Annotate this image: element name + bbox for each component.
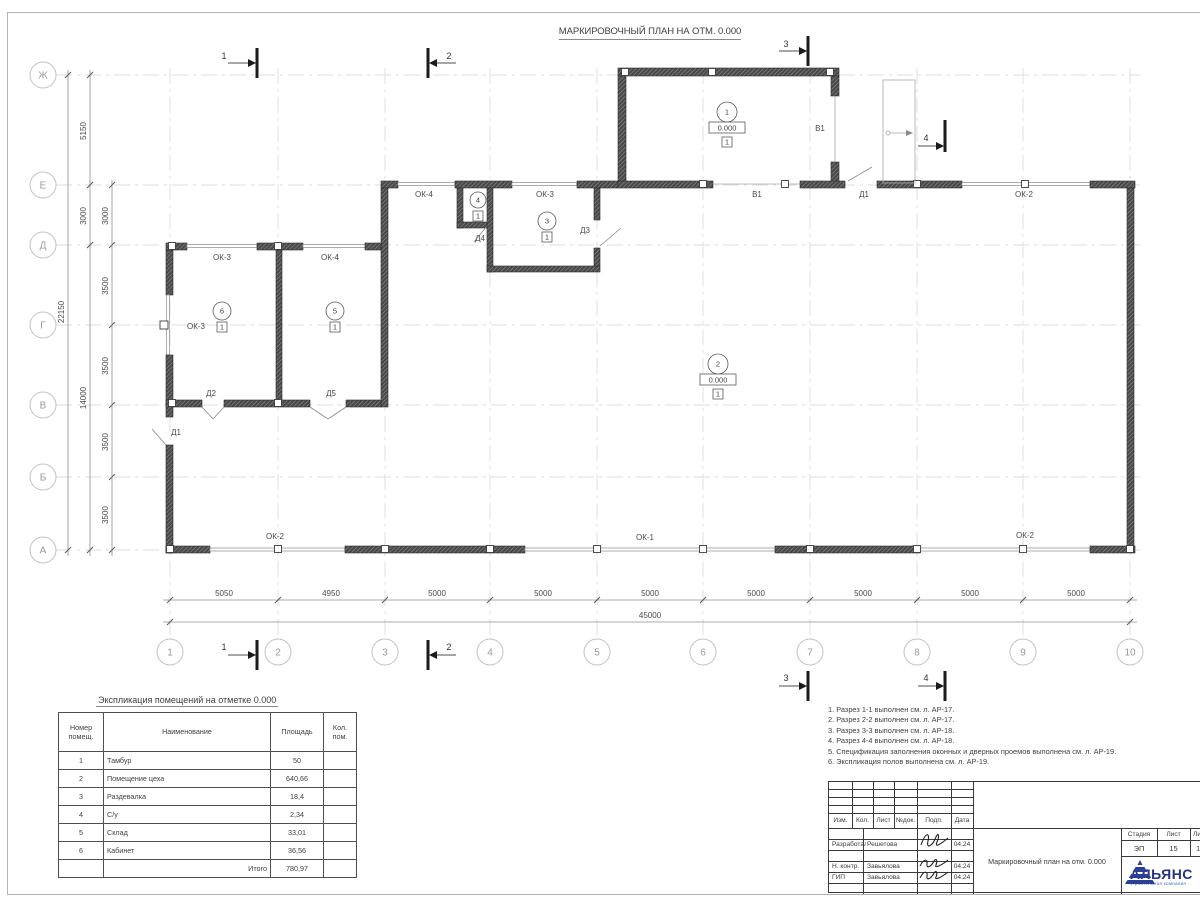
sheet-label: Лист — [1157, 828, 1190, 840]
svg-text:В: В — [40, 401, 47, 412]
svg-text:1: 1 — [725, 138, 729, 147]
svg-text:22150: 22150 — [57, 300, 66, 323]
svg-text:3500: 3500 — [101, 357, 110, 375]
total-value: 780,97 — [271, 860, 324, 878]
sheet-value: 15 — [1157, 840, 1190, 856]
table-title: Экспликация помещений на отметке 0.000 — [96, 695, 278, 707]
svg-text:Ж: Ж — [38, 71, 48, 82]
company-logo: АЛЬЯНС строительная компания — [1125, 860, 1200, 892]
svg-text:14000: 14000 — [79, 386, 88, 409]
svg-text:4: 4 — [476, 196, 480, 205]
note-line: 4. Разрез 4-4 выполнен см. л. АР-18. — [828, 736, 1188, 746]
date-developer: 04.24 — [951, 839, 973, 850]
svg-text:В1: В1 — [815, 124, 825, 133]
svg-text:Д1: Д1 — [859, 190, 869, 199]
svg-text:5000: 5000 — [854, 589, 872, 598]
ramp-arrow-icon — [906, 130, 913, 136]
svg-text:3000: 3000 — [101, 207, 110, 225]
svg-text:ОК-3: ОК-3 — [536, 190, 555, 199]
name-gip: Завьялова — [864, 872, 919, 883]
svg-text:В1: В1 — [752, 190, 762, 199]
title-block: Изм. Кол. Лист №док. Подп. Дата Разработ… — [828, 781, 1200, 893]
svg-text:Е: Е — [40, 181, 47, 192]
svg-text:4: 4 — [923, 133, 928, 143]
svg-text:1: 1 — [220, 323, 224, 332]
table-total-row: Итого 780,97 — [59, 860, 357, 878]
svg-text:1: 1 — [716, 390, 720, 399]
svg-text:4950: 4950 — [322, 589, 340, 598]
date-gip: 04.24 — [951, 872, 973, 883]
sheets-label: Листов — [1190, 828, 1200, 840]
table-row: 2 Помещение цеха 640,66 — [59, 770, 357, 788]
role-developer: Разработал — [829, 839, 866, 850]
svg-text:1: 1 — [221, 51, 226, 61]
svg-text:3000: 3000 — [79, 207, 88, 225]
svg-text:0.000: 0.000 — [718, 124, 737, 133]
date-ncontr: 04.24 — [951, 861, 973, 872]
stage-label: Стадия — [1121, 828, 1157, 840]
svg-text:3: 3 — [783, 39, 788, 49]
svg-text:1: 1 — [476, 212, 480, 221]
svg-text:1: 1 — [333, 323, 337, 332]
svg-text:ОК-2: ОК-2 — [266, 532, 285, 541]
svg-text:3: 3 — [545, 217, 549, 226]
svg-text:А: А — [40, 546, 47, 557]
svg-text:Б: Б — [40, 473, 47, 484]
svg-text:Д4: Д4 — [475, 234, 485, 243]
explication-table: Номер помещ. Наименование Площадь Кол. п… — [58, 712, 357, 878]
svg-text:6: 6 — [700, 648, 706, 659]
note-line: 3. Разрез 3-3 выполнен см. л. АР-18. — [828, 726, 1188, 736]
svg-text:1: 1 — [725, 108, 729, 117]
walls — [152, 68, 1135, 553]
svg-text:2: 2 — [446, 642, 451, 652]
col-data: Дата — [951, 813, 973, 828]
svg-text:3500: 3500 — [101, 506, 110, 524]
note-line: 1. Разрез 1-1 выполнен см. л. АР-17. — [828, 705, 1188, 715]
signature — [918, 868, 951, 882]
header-count: Кол. пом. — [324, 713, 357, 752]
note-line: 2. Разрез 2-2 выполнен см. л. АР-17. — [828, 715, 1188, 725]
svg-text:Д5: Д5 — [326, 389, 336, 398]
svg-text:ОК-3: ОК-3 — [213, 253, 232, 262]
svg-text:1: 1 — [167, 648, 173, 659]
svg-text:5: 5 — [333, 307, 337, 316]
svg-text:1: 1 — [545, 233, 549, 242]
col-izm: Изм. — [829, 813, 852, 828]
svg-text:ОК-3: ОК-3 — [187, 322, 206, 331]
svg-text:5: 5 — [594, 648, 600, 659]
name-developer: Решетова — [864, 839, 919, 850]
svg-text:Г: Г — [40, 321, 46, 332]
left-dimensions: 22150 5150 3000 14000 3000 3500 3500 350… — [57, 70, 115, 556]
svg-text:3500: 3500 — [101, 433, 110, 451]
drawing-sheet: { "sheet": { "title": "МАРКИРОВОЧНЫЙ ПЛА… — [0, 0, 1200, 900]
svg-text:2: 2 — [275, 648, 281, 659]
svg-text:3500: 3500 — [101, 277, 110, 295]
svg-text:5150: 5150 — [79, 122, 88, 140]
header-name: Наименование — [104, 713, 271, 752]
col-ndok: №док. — [894, 813, 917, 828]
note-line: 5. Спецификация заполнения оконных и две… — [828, 747, 1188, 757]
svg-text:Д3: Д3 — [580, 226, 590, 235]
svg-text:5000: 5000 — [747, 589, 765, 598]
stage-value: ЭП — [1121, 840, 1157, 856]
svg-text:10: 10 — [1124, 648, 1136, 659]
svg-text:6: 6 — [220, 307, 224, 316]
col-list: Лист — [873, 813, 894, 828]
svg-text:9: 9 — [1020, 648, 1026, 659]
svg-text:8: 8 — [914, 648, 920, 659]
svg-text:5000: 5000 — [428, 589, 446, 598]
section-marks: 1 1 2 2 3 3 4 4 — [221, 36, 945, 701]
svg-text:3: 3 — [382, 648, 388, 659]
svg-text:ОК-2: ОК-2 — [1016, 531, 1035, 540]
notes-list: 1. Разрез 1-1 выполнен см. л. АР-17. 2. … — [828, 705, 1188, 767]
svg-text:ОК-2: ОК-2 — [1015, 190, 1034, 199]
svg-text:ОК-4: ОК-4 — [415, 190, 434, 199]
svg-text:Д1: Д1 — [171, 428, 181, 437]
header-area: Площадь — [271, 713, 324, 752]
table-header-row: Номер помещ. Наименование Площадь Кол. п… — [59, 713, 357, 752]
header-num: Номер помещ. — [59, 713, 104, 752]
sheets-value: 1 — [1190, 840, 1200, 856]
svg-text:Д: Д — [40, 241, 47, 252]
ramp — [883, 80, 915, 183]
logo-triangle-icon — [1125, 860, 1155, 884]
table-row: 4 С/у 2,34 — [59, 806, 357, 824]
col-podp: Подп. — [917, 813, 951, 828]
svg-text:3: 3 — [783, 673, 788, 683]
svg-text:2: 2 — [446, 51, 451, 61]
column-markers — [167, 69, 1134, 553]
role-gip: ГИП — [829, 872, 866, 883]
total-label: Итого — [104, 860, 271, 878]
svg-text:5000: 5000 — [534, 589, 552, 598]
bottom-dimensions: 5050 4950 5000 5000 5000 5000 5000 5000 … — [163, 589, 1137, 625]
role-ncontr: Н. контр. — [829, 861, 866, 872]
svg-text:0.000: 0.000 — [709, 376, 728, 385]
svg-text:ОК-1: ОК-1 — [636, 533, 655, 542]
room-markers: 1 0.000 1 2 0.000 1 3 1 4 1 5 1 6 1 — [213, 102, 745, 399]
table-row: 6 Кабинет 36,56 — [59, 842, 357, 860]
table-row: 1 Тамбур 50 — [59, 752, 357, 770]
signature — [918, 829, 951, 851]
svg-text:4: 4 — [923, 673, 928, 683]
svg-text:5000: 5000 — [1067, 589, 1085, 598]
name-ncontr: Завьялова — [864, 861, 919, 872]
svg-text:5050: 5050 — [215, 589, 233, 598]
svg-text:45000: 45000 — [639, 611, 662, 620]
room-explication: Экспликация помещений на отметке 0.000 Н… — [58, 690, 334, 878]
row-axis-bubbles: Ж Е Д Г В Б А — [30, 62, 56, 563]
svg-text:2: 2 — [716, 360, 720, 369]
svg-text:Д2: Д2 — [206, 389, 216, 398]
svg-text:5000: 5000 — [641, 589, 659, 598]
document-title: Маркировочный план на отм. 0.000 — [973, 828, 1121, 894]
svg-text:5000: 5000 — [961, 589, 979, 598]
note-line: 6. Экспликация полов выполнена см. л. АР… — [828, 757, 1188, 767]
svg-text:7: 7 — [807, 648, 813, 659]
col-kol: Кол. — [852, 813, 873, 828]
table-row: 3 Раздевалка 18,4 — [59, 788, 357, 806]
svg-text:4: 4 — [487, 648, 493, 659]
svg-text:1: 1 — [221, 642, 226, 652]
table-row: 5 Склад 33,01 — [59, 824, 357, 842]
col-axis-bubbles: 1 2 3 4 5 6 7 8 9 10 — [157, 639, 1143, 665]
svg-text:ОК-4: ОК-4 — [321, 253, 340, 262]
